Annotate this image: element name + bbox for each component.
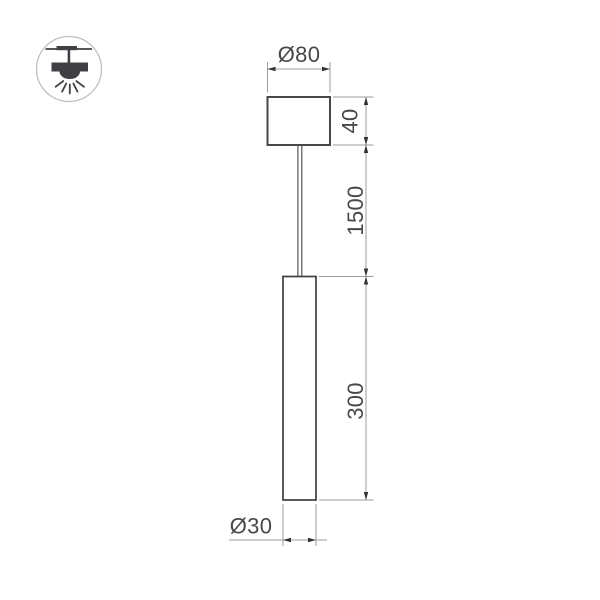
- arrow-right-icon: [322, 67, 330, 71]
- dimension-tube-length: 300: [319, 277, 374, 501]
- arrow-up-icon: [364, 97, 368, 105]
- dimension-tube-diameter: Ø30: [229, 504, 327, 546]
- arrow-down-icon: [364, 137, 368, 145]
- dimension-label-canopy-height: 40: [338, 108, 363, 133]
- arrow-right-icon: [308, 538, 316, 542]
- arrow-left-icon: [283, 538, 291, 542]
- arrow-up-icon: [364, 145, 368, 153]
- canopy-outline: [268, 97, 331, 145]
- icon-mount-plate: [57, 46, 78, 50]
- arrow-left-icon: [268, 67, 276, 71]
- icon-stem: [68, 50, 71, 64]
- dimension-label-tube-diameter: Ø30: [230, 514, 272, 539]
- tube-outline: [283, 277, 316, 501]
- dimension-drawing-page: Ø80 40 1500: [0, 0, 600, 600]
- luminaire-outline: [268, 97, 331, 500]
- technical-drawing-canvas: Ø80 40 1500: [0, 0, 600, 600]
- dimension-label-suspension-length: 1500: [343, 185, 368, 235]
- dimension-canopy-diameter: Ø80: [268, 42, 331, 93]
- arrow-up-icon: [364, 277, 368, 285]
- icon-lampshade: [52, 63, 89, 72]
- dimension-label-canopy-diameter: Ø80: [278, 42, 320, 67]
- dimension-canopy-height: 40: [333, 97, 374, 145]
- ceiling-pendant-light-icon: [37, 37, 102, 102]
- dimension-suspension-length: 1500: [319, 145, 374, 277]
- arrow-down-icon: [364, 492, 368, 500]
- suspension-wire: [298, 145, 302, 277]
- dimension-label-tube-length: 300: [343, 382, 368, 420]
- arrow-down-icon: [364, 269, 368, 277]
